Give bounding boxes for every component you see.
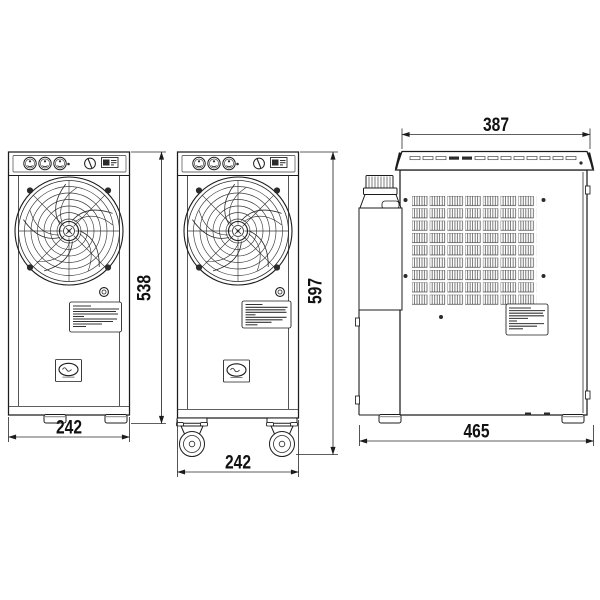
hinge-tab xyxy=(586,391,591,399)
screw-icon xyxy=(105,264,111,270)
drain-tab xyxy=(525,413,531,416)
screw-icon xyxy=(542,198,546,202)
thermostat-knob-icon xyxy=(208,157,220,169)
thermostat-knob-icon xyxy=(223,157,235,169)
rating-badge xyxy=(271,158,288,168)
screw-icon xyxy=(542,274,546,278)
top-cover xyxy=(396,152,594,171)
hinge-tab xyxy=(356,396,360,404)
brand-logo xyxy=(224,360,250,382)
drain-tab xyxy=(544,413,550,416)
thermostat-knob-icon xyxy=(39,157,51,169)
dimension-front-height: 538 xyxy=(131,152,166,424)
screw-icon xyxy=(105,187,111,193)
three-view-technical-drawing: 242 538 xyxy=(0,0,600,600)
caster-wheel xyxy=(177,418,208,457)
caster-wheel xyxy=(267,418,298,457)
foot xyxy=(562,415,584,424)
spec-label xyxy=(506,304,548,335)
screw-icon xyxy=(196,187,202,193)
thermostat-knob-icon xyxy=(54,157,66,169)
dimension-label-caster-width: 242 xyxy=(225,453,251,474)
rating-badge xyxy=(102,158,119,168)
screw-icon xyxy=(196,264,202,270)
dimension-label-front-height: 538 xyxy=(135,275,156,301)
screw-icon xyxy=(27,187,33,193)
screw-icon xyxy=(27,264,33,270)
dimension-side-bottom-width: 465 xyxy=(360,422,594,447)
dimension-label-caster-height: 597 xyxy=(306,278,327,304)
thermostat-knob-icon xyxy=(24,157,36,169)
power-switch-icon xyxy=(85,158,96,169)
hinge-tab xyxy=(586,186,591,194)
power-switch-icon xyxy=(254,158,265,169)
foot xyxy=(379,415,401,424)
screw-icon xyxy=(404,274,408,278)
screw-icon xyxy=(579,161,582,164)
dimension-label-front-width: 242 xyxy=(56,418,82,439)
bottle-body xyxy=(359,208,402,310)
thermostat-knob-icon xyxy=(193,157,205,169)
coolant-bottle xyxy=(359,176,402,311)
screw-icon xyxy=(274,264,280,270)
screw-icon xyxy=(274,187,280,193)
dimension-label-side-top-width: 387 xyxy=(483,115,509,136)
indicator-led-icon xyxy=(67,163,70,166)
dimension-caster-height: 597 xyxy=(296,152,338,455)
warning-label xyxy=(70,302,122,332)
warning-label xyxy=(242,301,291,328)
front-view-casters xyxy=(177,152,299,457)
indicator-led-icon xyxy=(236,163,239,166)
dimension-label-side-bottom-width: 465 xyxy=(464,422,490,443)
bottle-cap xyxy=(366,176,393,189)
hinge-tab xyxy=(356,318,360,326)
foot xyxy=(105,415,127,424)
technical-drawing-page: 242 538 xyxy=(0,0,600,600)
screw-icon xyxy=(404,198,408,202)
dimension-side-top-width: 387 xyxy=(402,115,590,149)
side-view xyxy=(356,152,594,424)
vent-grille xyxy=(412,196,536,307)
front-view xyxy=(9,152,130,423)
screw-icon xyxy=(439,315,443,319)
brand-logo xyxy=(56,360,82,382)
bottle-cap-flange xyxy=(364,188,398,195)
